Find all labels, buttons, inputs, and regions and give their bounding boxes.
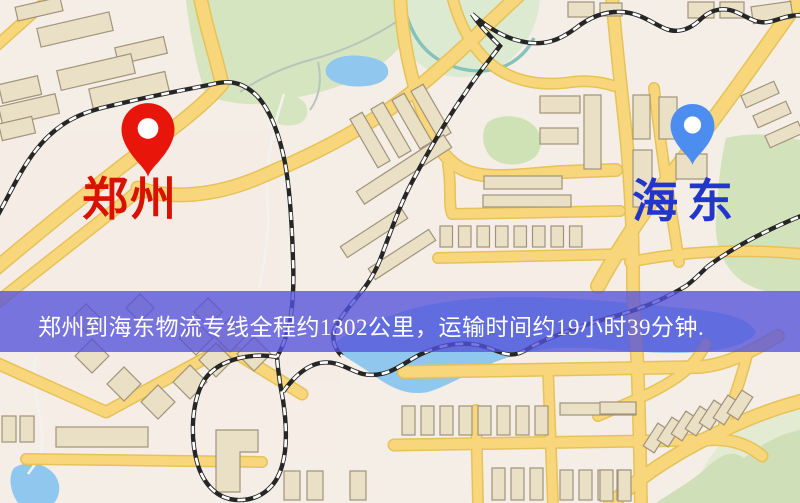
lake [326,56,389,87]
destination-label: 海东 [632,179,742,225]
route-banner: 郑州到海东物流专线全程约1302公里，运输时间约19小时39分钟. [0,291,800,352]
route-banner-text: 郑州到海东物流专线全程约1302公里，运输时间约19小时39分钟. [0,302,704,342]
origin-pin[interactable] [118,102,178,178]
destination-pin[interactable] [669,103,716,166]
map-view: 郑州 海东 郑州到海东物流专线全程约1302公里，运输时间约19小时39分钟. [0,0,800,503]
map-pin-icon [118,102,178,178]
map-pin-icon [669,103,716,166]
origin-label: 郑州 [82,177,178,223]
map-canvas [0,0,800,503]
